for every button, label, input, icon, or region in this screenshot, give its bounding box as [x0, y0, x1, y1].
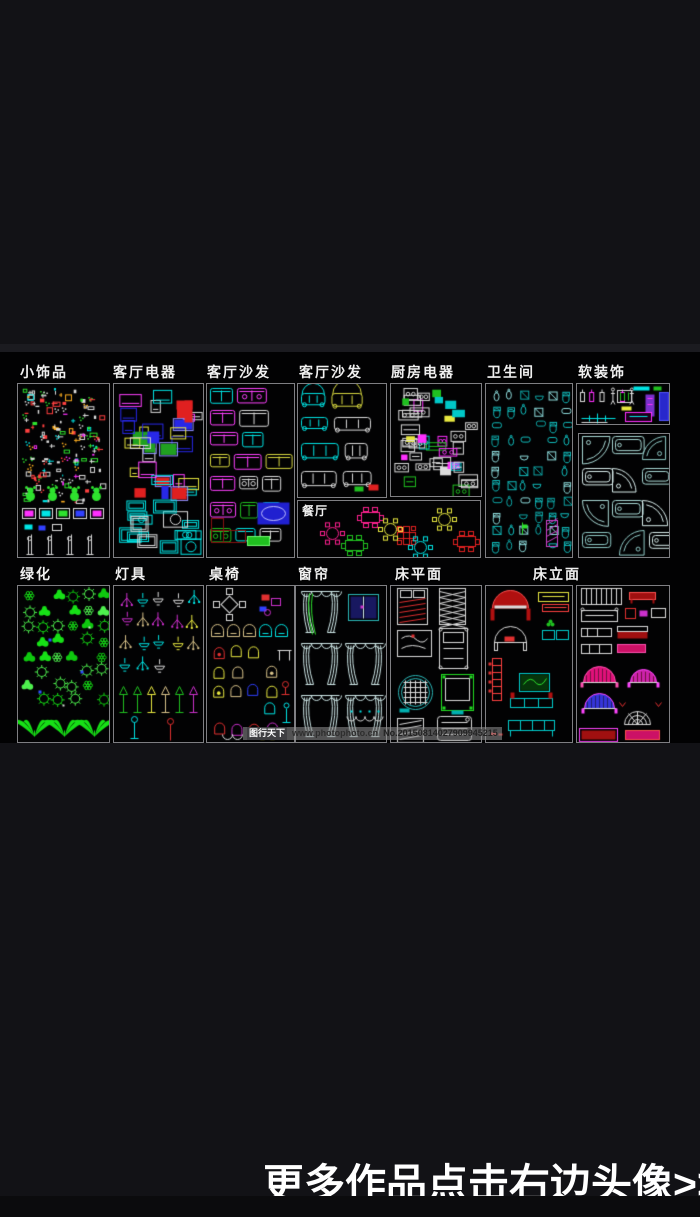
watermark: 图行天下 www.photophoto.cn No.20150814027909… [243, 727, 502, 740]
panel-tables-chairs [206, 585, 295, 743]
panel-canvas-trinkets [18, 384, 110, 558]
panel-label-kitchen-appliances: 厨房电器 [391, 363, 455, 381]
panel-curtains [295, 585, 387, 743]
watermark-brand: 图行天下 [247, 727, 287, 740]
panel-label-trinkets: 小饰品 [20, 363, 68, 381]
panel-label-bathroom: 卫生间 [487, 363, 535, 381]
poster-canvas: 小饰品客厅电器客厅沙发客厅沙发厨房电器餐厅卫生间软装饰绿化灯具桌椅窗帘床平面床立… [0, 0, 700, 1217]
panel-bathroom [485, 383, 573, 558]
panel-label-greenery: 绿化 [20, 565, 52, 583]
panel-label-bed-elevation-a: 床立面 [533, 565, 581, 583]
panel-lamps [113, 585, 204, 743]
panel-bathtubs [578, 433, 670, 558]
panel-canvas-sofa-elev [298, 384, 387, 498]
panel-sofa-plan [206, 383, 295, 558]
panel-canvas-kitchen-appliances [391, 384, 482, 497]
panel-canvas-bed-elevation-a [486, 586, 573, 743]
panel-canvas-soft-decor [577, 384, 670, 425]
panel-canvas-lamps [114, 586, 204, 743]
panel-trinkets [17, 383, 110, 558]
panel-canvas-tables-chairs [207, 586, 295, 743]
watermark-site: www.photophoto.cn [292, 727, 378, 740]
panel-living-appliances [113, 383, 204, 558]
panel-kitchen-appliances [390, 383, 482, 497]
panel-greenery [17, 585, 110, 743]
panel-bed-elevation-a [485, 585, 573, 743]
panel-label-soft-decor: 软装饰 [578, 363, 626, 381]
panel-canvas-bed-plan [391, 586, 482, 743]
panel-canvas-living-appliances [114, 384, 204, 558]
panel-canvas-bathtubs [579, 434, 670, 558]
panel-label-sofa-elev: 客厅沙发 [299, 363, 363, 381]
panel-canvas-sofa-plan [207, 384, 295, 558]
panel-canvas-bathroom [486, 384, 573, 558]
panel-label-living-appliances: 客厅电器 [113, 363, 177, 381]
footer-shade [0, 1196, 700, 1217]
panel-label-bed-plan: 床平面 [395, 565, 443, 583]
panel-canvas-greenery [18, 586, 110, 743]
panel-canvas-bed-elevation-b [577, 586, 670, 743]
panel-label-sofa-plan: 客厅沙发 [207, 363, 271, 381]
panel-bed-plan [390, 585, 482, 743]
panel-dining: 餐厅 [297, 500, 481, 558]
panel-label-curtains: 窗帘 [298, 565, 330, 583]
panel-sofa-elev [297, 383, 387, 498]
cad-sheet: 小饰品客厅电器客厅沙发客厅沙发厨房电器餐厅卫生间软装饰绿化灯具桌椅窗帘床平面床立… [0, 352, 700, 743]
panel-label-tables-chairs: 桌椅 [209, 565, 241, 583]
panel-label-dining: 餐厅 [302, 502, 328, 519]
panel-canvas-curtains [296, 586, 387, 743]
watermark-serial: No.20150814027909945215 [383, 727, 498, 740]
panel-label-lamps: 灯具 [115, 565, 147, 583]
panel-soft-decor [576, 383, 670, 425]
panel-bed-elevation-b [576, 585, 670, 743]
